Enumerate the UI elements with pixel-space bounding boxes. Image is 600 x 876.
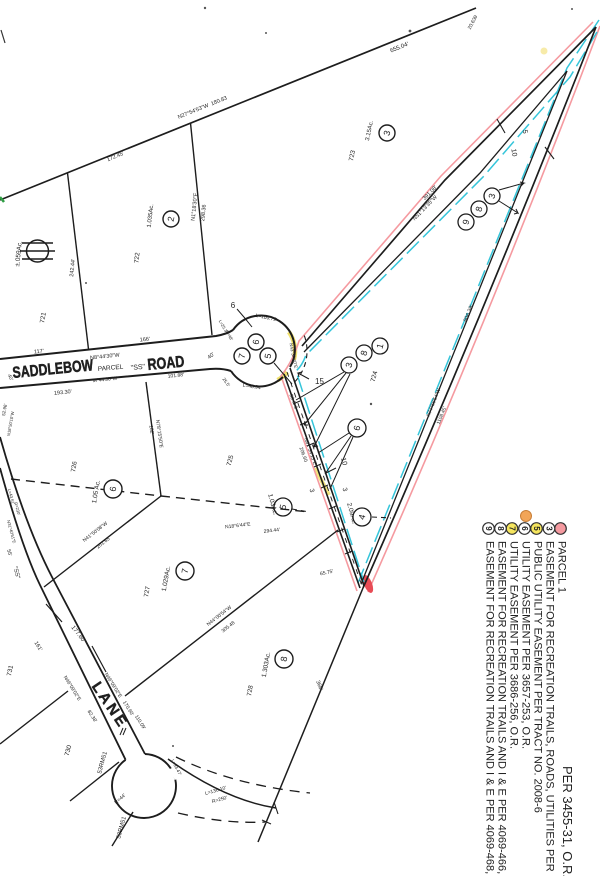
svg-text:10: 10 (509, 148, 517, 157)
svg-text:722: 722 (133, 252, 141, 264)
svg-text:3: 3 (545, 526, 554, 531)
svg-text:"SS": "SS" (131, 364, 146, 372)
svg-text:6: 6 (231, 301, 236, 310)
svg-text:7: 7 (508, 526, 517, 531)
svg-text:9: 9 (484, 526, 493, 531)
svg-text:166': 166' (139, 336, 150, 343)
svg-text:5: 5 (532, 526, 541, 531)
svg-text:UTILITY EASEMENT PER 3657-253,: UTILITY EASEMENT PER 3657-253, O.R. (520, 541, 532, 749)
svg-text:ROAD: ROAD (147, 354, 185, 374)
svg-text:PARCEL 1: PARCEL 1 (556, 541, 568, 593)
svg-text:UTILITY EASEMENT PER 3686-256,: UTILITY EASEMENT PER 3686-256, O.R. (508, 541, 520, 749)
svg-text:EASEMENT FOR RECREATION TRAILS: EASEMENT FOR RECREATION TRAILS, ROADS, U… (544, 541, 556, 872)
svg-text:PUBLIC UTILITY EASEMENT PER TR: PUBLIC UTILITY EASEMENT PER TRACT NO. 20… (532, 541, 544, 813)
svg-text:EASEMENT FOR RECREATION TRAILS: EASEMENT FOR RECREATION TRAILS AND I & E… (484, 541, 496, 876)
svg-text:8: 8 (496, 526, 505, 531)
svg-text:PER 3455-31, O.R.: PER 3455-31, O.R. (560, 766, 575, 876)
svg-text:117': 117' (34, 349, 44, 356)
svg-text:6: 6 (520, 526, 529, 531)
svg-text:EASEMENT FOR RECREATION TRAILS: EASEMENT FOR RECREATION TRAILS AND I & E… (496, 541, 508, 876)
